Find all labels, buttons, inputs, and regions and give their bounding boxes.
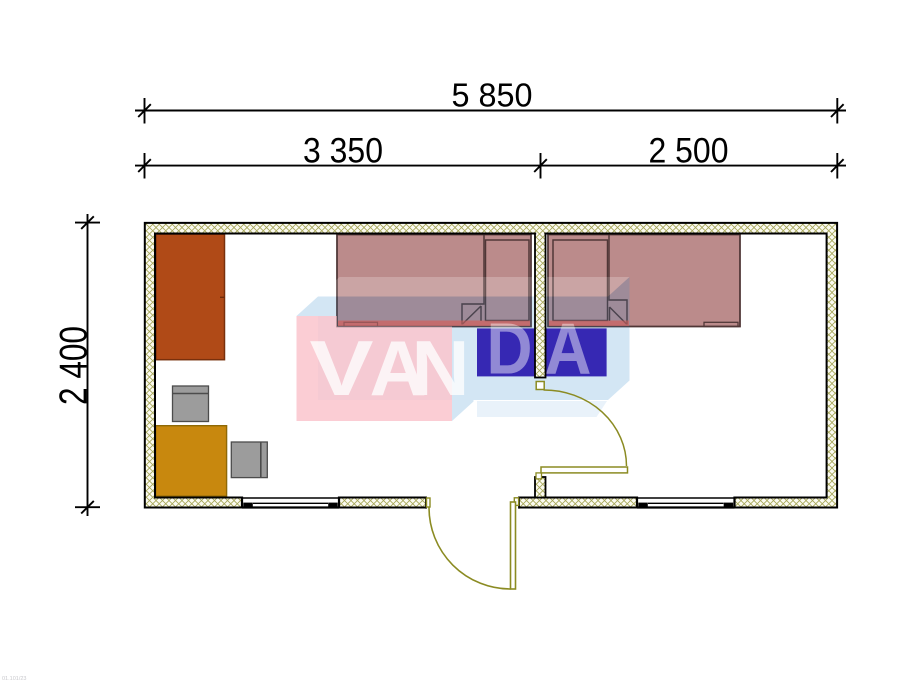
svg-text:V: V (310, 324, 374, 412)
svg-text:N: N (412, 324, 470, 412)
svg-text:01.101/23: 01.101/23 (2, 676, 26, 682)
svg-text:2 500: 2 500 (649, 132, 729, 171)
svg-text:A: A (545, 310, 592, 390)
svg-text:D: D (487, 310, 533, 390)
svg-text:5 850: 5 850 (452, 77, 533, 114)
svg-text:2 400: 2 400 (52, 326, 95, 405)
svg-text:3 350: 3 350 (303, 132, 383, 171)
